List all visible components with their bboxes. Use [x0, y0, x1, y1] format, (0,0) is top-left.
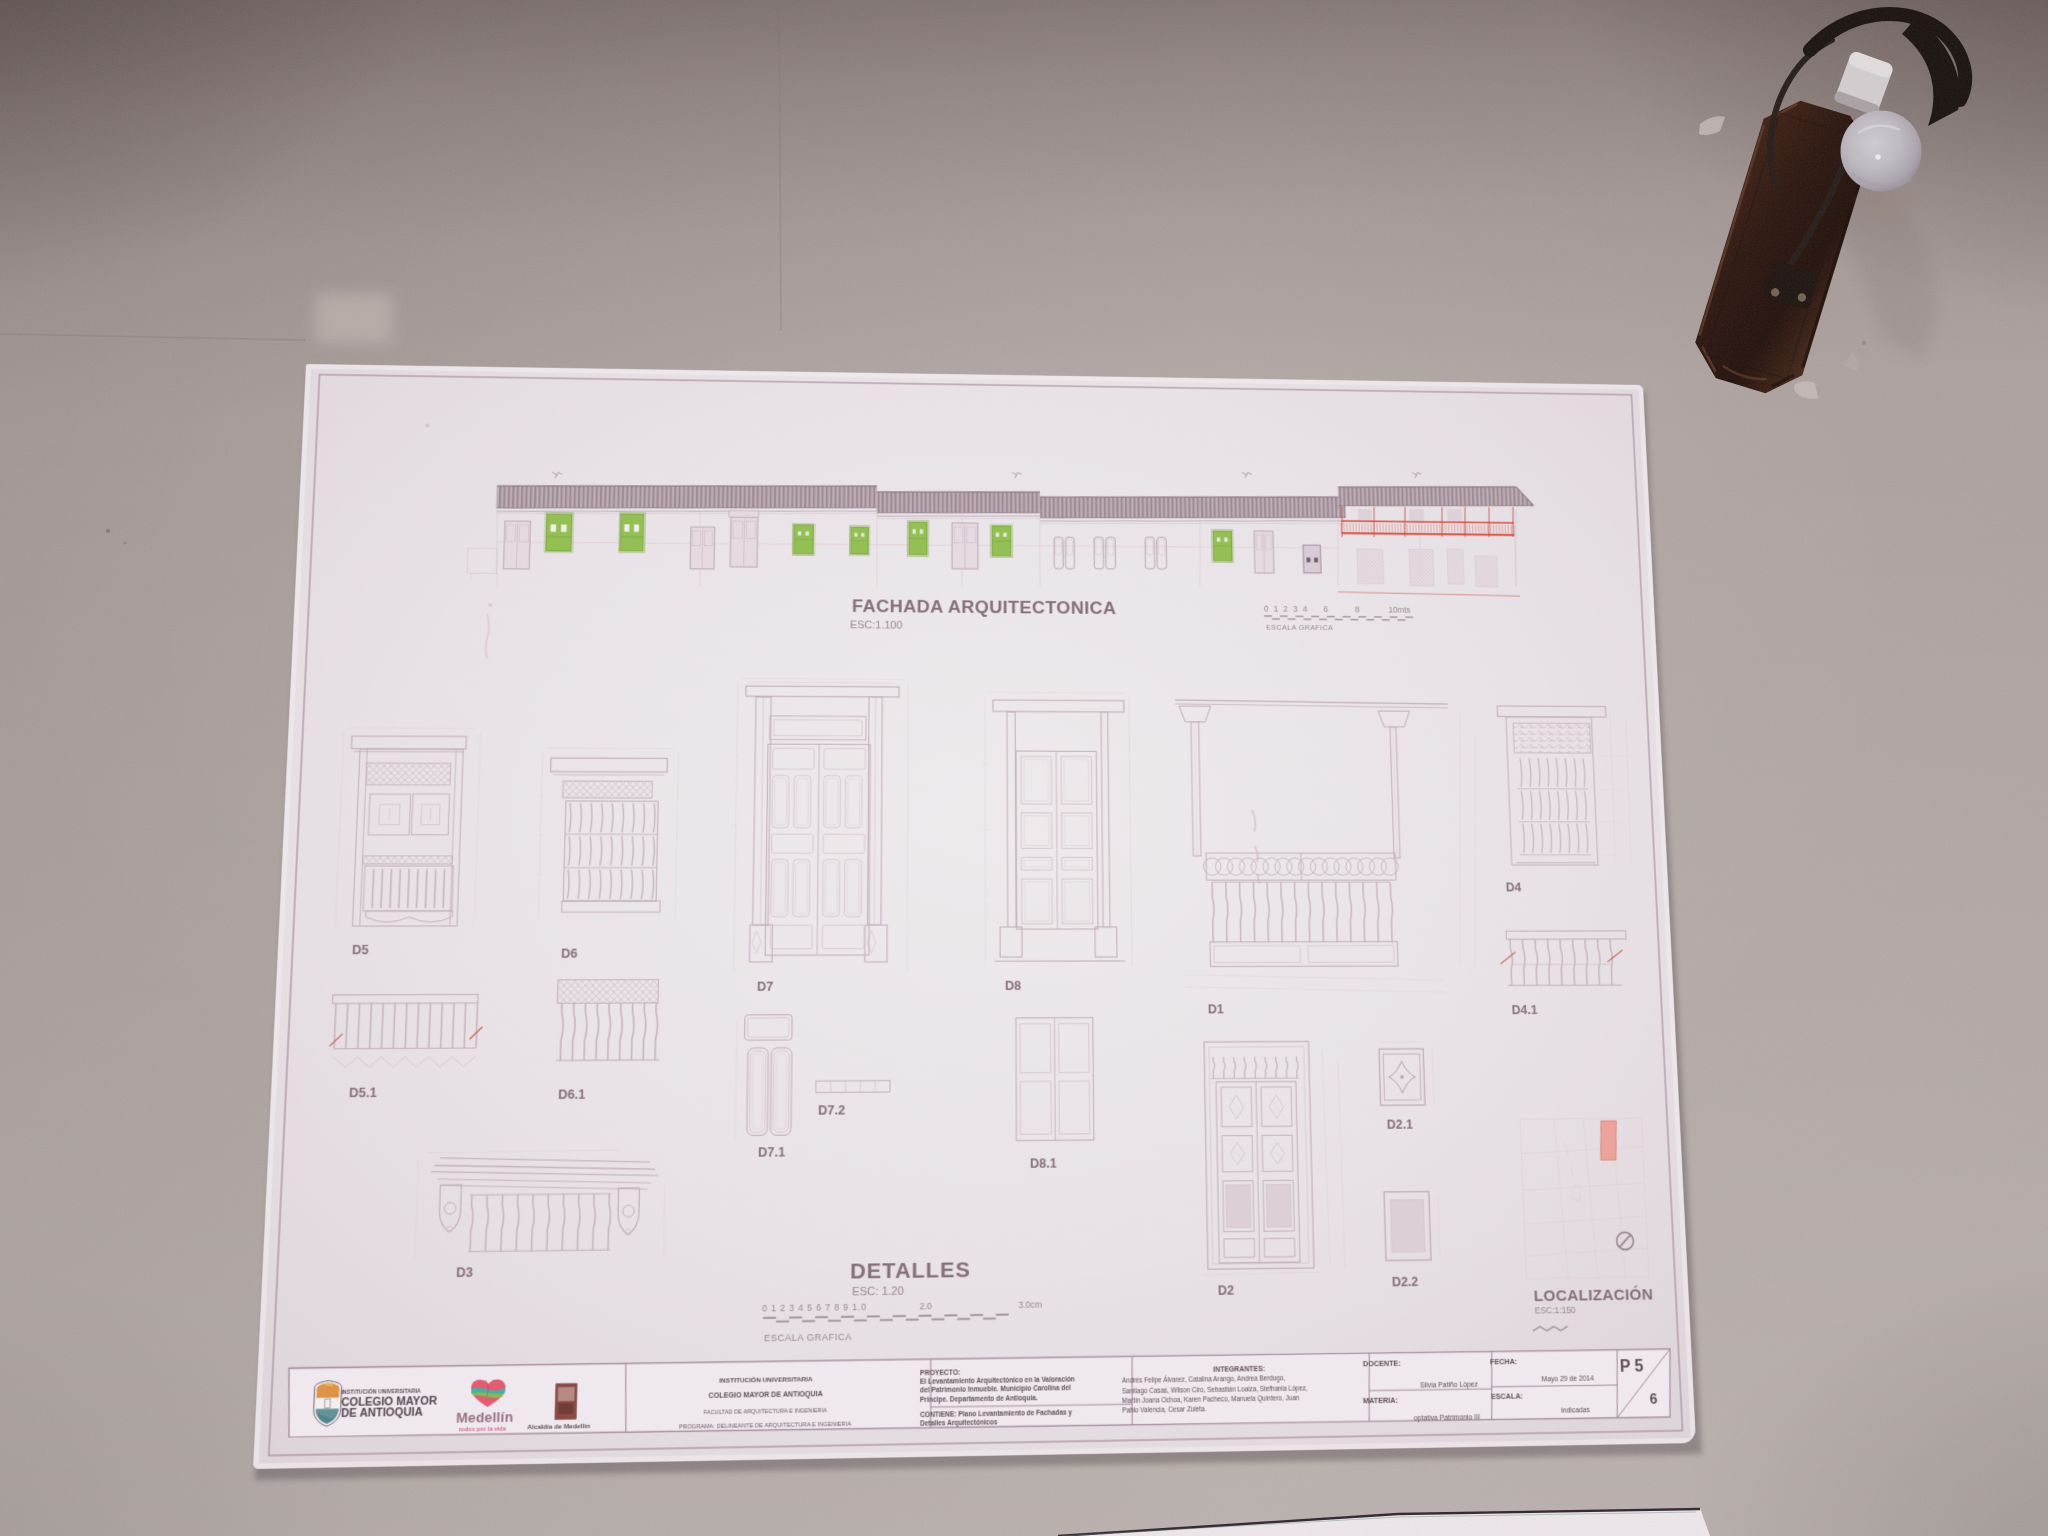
- svg-text:D8.1: D8.1: [1030, 1156, 1057, 1171]
- svg-text:todos por la vida: todos por la vida: [459, 1426, 506, 1434]
- svg-text:D7.2: D7.2: [818, 1103, 845, 1118]
- svg-text:6: 6: [1323, 606, 1328, 615]
- svg-text:6: 6: [1649, 1391, 1658, 1407]
- svg-text:D1: D1: [1208, 1002, 1224, 1017]
- svg-text:PROYECTO:: PROYECTO:: [920, 1369, 960, 1377]
- svg-text:0 1 2 3 4 5 6 7 8 9 1.0: 0 1 2 3 4 5 6 7 8 9 1.0: [762, 1303, 867, 1314]
- svg-text:Pablo Valencia, Cesar Zuleta.: Pablo Valencia, Cesar Zuleta.: [1122, 1406, 1207, 1415]
- svg-text:8: 8: [1355, 606, 1360, 615]
- svg-text:FACHADA ARQUITECTONICA: FACHADA ARQUITECTONICA: [852, 596, 1116, 618]
- svg-text:3.0cm: 3.0cm: [1018, 1301, 1042, 1311]
- svg-text:D2.1: D2.1: [1387, 1117, 1414, 1132]
- svg-text:D3: D3: [456, 1265, 474, 1281]
- svg-text:Medellín: Medellín: [456, 1410, 514, 1427]
- svg-text:MATERIA:: MATERIA:: [1363, 1397, 1398, 1405]
- svg-text:LOCALIZACIÓN: LOCALIZACIÓN: [1533, 1284, 1653, 1305]
- svg-text:D2.2: D2.2: [1392, 1274, 1419, 1289]
- svg-text:ESC: 1.20: ESC: 1.20: [852, 1284, 904, 1298]
- svg-text:Mayo 29 de 2014: Mayo 29 de 2014: [1541, 1376, 1594, 1384]
- svg-text:D6: D6: [561, 946, 578, 961]
- svg-text:D6.1: D6.1: [558, 1087, 586, 1102]
- svg-text:ESC:1.100: ESC:1.100: [850, 619, 903, 631]
- svg-text:optativa Patrimonio III: optativa Patrimonio III: [1414, 1414, 1481, 1423]
- svg-text:ESCALA GRAFICA: ESCALA GRAFICA: [1266, 623, 1334, 632]
- svg-text:Indicadas: Indicadas: [1561, 1407, 1591, 1415]
- svg-text:D5: D5: [352, 942, 370, 957]
- svg-text:D7: D7: [757, 979, 774, 994]
- svg-text:DE ANTIOQUIA: DE ANTIOQUIA: [341, 1407, 424, 1421]
- svg-text:D5.1: D5.1: [349, 1085, 378, 1100]
- svg-text:ESC:1:150: ESC:1:150: [1535, 1306, 1577, 1316]
- svg-text:D2: D2: [1218, 1283, 1235, 1298]
- svg-text:D7.1: D7.1: [758, 1145, 786, 1160]
- svg-text:P 5: P 5: [1619, 1358, 1644, 1377]
- svg-text:FECHA:: FECHA:: [1490, 1358, 1517, 1366]
- svg-text:0 1 2 3 4: 0 1 2 3 4: [1264, 605, 1309, 614]
- svg-text:ESCALA GRAFICA: ESCALA GRAFICA: [764, 1331, 852, 1343]
- svg-text:D8: D8: [1005, 978, 1021, 993]
- svg-text:2.0: 2.0: [920, 1302, 933, 1312]
- svg-text:10mts: 10mts: [1388, 606, 1410, 615]
- svg-text:D4: D4: [1506, 880, 1522, 894]
- svg-text:Alcaldía de Medellín: Alcaldía de Medellín: [527, 1423, 591, 1431]
- svg-text:DOCENTE:: DOCENTE:: [1363, 1360, 1401, 1368]
- svg-text:DETALLES: DETALLES: [850, 1259, 971, 1284]
- svg-text:D4.1: D4.1: [1512, 1003, 1539, 1018]
- svg-text:ESCALA:: ESCALA:: [1491, 1393, 1523, 1401]
- svg-text:Silvia Patiño López: Silvia Patiño López: [1420, 1382, 1478, 1391]
- svg-text:Detalles Arquitectónicos: Detalles Arquitectónicos: [920, 1419, 998, 1428]
- svg-text:INTEGRANTES:: INTEGRANTES:: [1213, 1366, 1265, 1374]
